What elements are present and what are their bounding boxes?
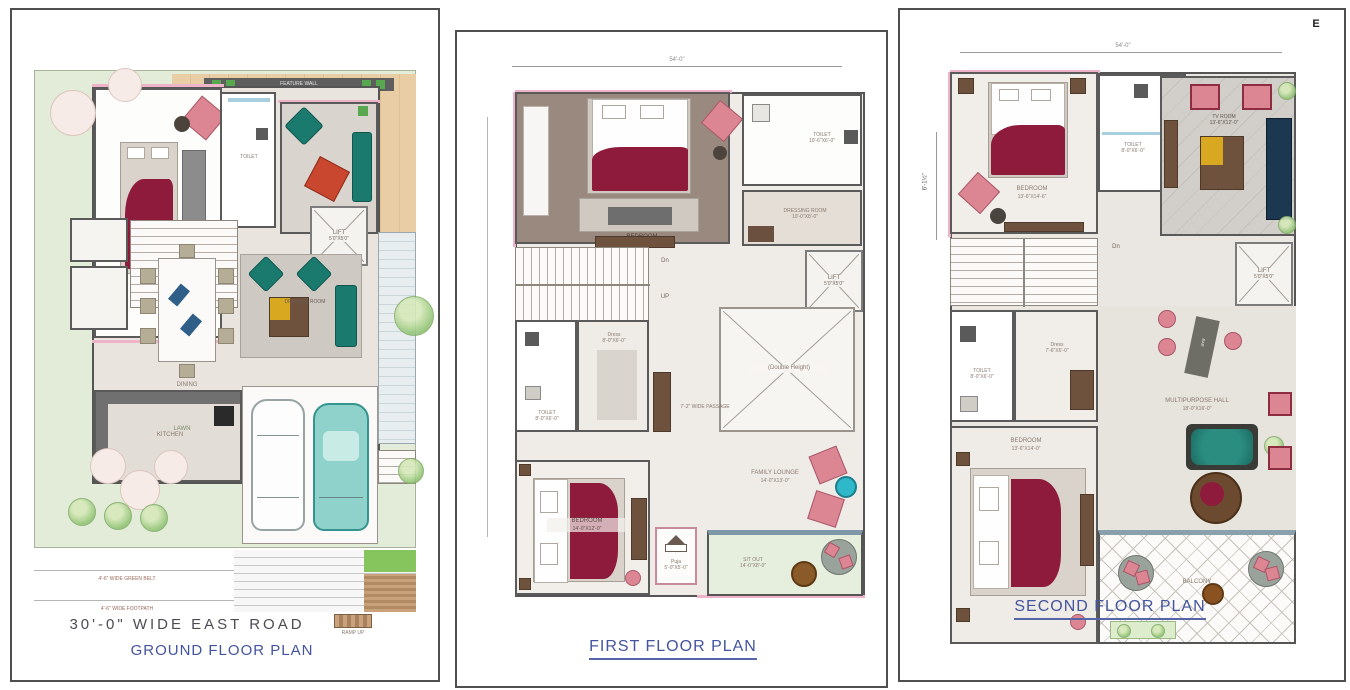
stairs-down-label: Dn — [1104, 244, 1128, 252]
wardrobe — [523, 106, 549, 216]
greenbelt-label: 4'-6" WIDE GREEN BELT — [52, 576, 202, 582]
stairs-down-label: Dn — [653, 258, 677, 266]
lift-label: LIFT5'0"X5'0" — [329, 230, 349, 243]
round-sofa-icon — [1190, 472, 1242, 524]
sofa-icon — [335, 285, 357, 347]
passage-label: 7'-2" WIDE PASSAGE — [655, 404, 755, 410]
bed — [587, 98, 691, 194]
bedroom: BEDROOM13'-6"X14'-6" — [950, 72, 1098, 234]
dimension-line — [960, 52, 1282, 53]
toilet-label: TOILET8'-0"X6'-0" — [523, 410, 571, 423]
lift-label: LIFT5'0"X5'0" — [1254, 268, 1274, 281]
chair-icon — [218, 298, 234, 314]
dimension-line — [936, 132, 937, 240]
ramp-icon — [334, 614, 372, 628]
plan-title: GROUND FLOOR PLAN — [82, 642, 362, 659]
multipurpose-hall: BAR MULTIPURPOSE HALL18'-0"X16'-0" — [1098, 306, 1296, 530]
dimension-label: 6'-1½" — [922, 162, 930, 202]
chair-icon — [140, 268, 156, 284]
balcony-label: BALCONY — [1162, 579, 1232, 587]
toilet-label: TOILET — [226, 154, 272, 160]
cabinet — [748, 226, 774, 242]
tree-icon — [154, 450, 188, 484]
footpath-line — [34, 600, 234, 601]
second-floor-panel: E 54'-0" 6'-1½" BEDROOM13'-6"X14'-6" TOI… — [898, 8, 1346, 682]
kitchen-counter — [96, 392, 240, 404]
dimension-line — [512, 66, 842, 67]
wc-icon — [525, 386, 541, 400]
corner-post — [519, 464, 531, 476]
puja-room: Puja5'-0"X5'-0" — [655, 527, 697, 585]
footpath-label: 4'-6" WIDE FOOTPATH — [52, 606, 202, 612]
tree-icon — [50, 90, 96, 136]
tree-icon — [140, 504, 168, 532]
balcony: BALCONY — [1098, 530, 1296, 644]
tv-room-label: TV ROOM13'-6"X12'-0" — [1194, 114, 1254, 127]
utility-room — [70, 266, 128, 330]
table-decor-icon — [180, 313, 202, 336]
tree-icon — [90, 448, 126, 484]
family-lounge-label: FAMILY LOUNGE14'-0"X13'-0" — [725, 470, 825, 484]
road-label: 30'-0" WIDE EAST ROAD — [42, 616, 332, 633]
dining-label: DINING — [158, 382, 216, 390]
dimension-label: 54'-0" — [652, 57, 702, 65]
ground-toilet: TOILET — [220, 92, 276, 228]
dress-room: Dress7'-6"X6'-0" — [1014, 310, 1098, 422]
toilet-2: TOILET8'-0"X6'-0" — [950, 310, 1014, 422]
shrine-icon — [667, 535, 685, 544]
staircase — [950, 238, 1098, 306]
corner-post — [956, 452, 970, 466]
lift-shaft: LIFT5'0"X5'0" — [805, 250, 863, 312]
cabinet — [1070, 370, 1094, 410]
greenbelt-line — [34, 570, 234, 571]
kitchen-counter — [96, 392, 108, 452]
floor-plan-sheet: { "colors": { "title_blue": "#44549e", "… — [0, 0, 1350, 690]
plant-icon — [1278, 82, 1296, 100]
sofa-icon — [352, 132, 372, 202]
lift-label: LIFT5'0"X5'0" — [824, 275, 844, 288]
bedroom-label: BEDROOM13'-6"X14'-6" — [992, 186, 1072, 200]
toilet-label: TOILET8'-0"X6'-0" — [1106, 142, 1160, 155]
washbasin-icon — [256, 128, 268, 140]
tree-icon — [104, 502, 132, 530]
accent-chair-icon — [304, 156, 350, 202]
plant-icon — [1278, 216, 1296, 234]
first-floor-panel: 54'-0" BEDROOM15'-0"X14'-0" TOILET10'-6"… — [455, 30, 888, 688]
chair-icon — [218, 328, 234, 344]
master-bedroom: BEDROOM15'-0"X14'-0" — [515, 92, 730, 244]
dress-label: Dress8'-0"X6'-0" — [589, 332, 639, 345]
armchair-icon — [248, 256, 285, 293]
round-table-icon — [791, 561, 817, 587]
dimension-label: 54'-0" — [1098, 43, 1148, 51]
bar-label: BAR — [1199, 336, 1206, 349]
bar-stool-icon — [1224, 332, 1242, 350]
rug — [579, 198, 699, 232]
plan-title: FIRST FLOOR PLAN — [523, 638, 823, 656]
parking — [242, 386, 378, 544]
plan-title: SECOND FLOOR PLAN — [960, 598, 1260, 616]
washbasin-icon — [1134, 84, 1148, 98]
lawn-label: LAWN — [152, 426, 212, 434]
corner-post — [958, 78, 974, 94]
sit-out: SIT OUT14'-0"X8'-0" — [707, 530, 863, 596]
bedroom-2: BEDROOM14'-0"X12'-0" — [515, 460, 650, 595]
boundary-line — [487, 117, 488, 537]
round-table-icon — [835, 476, 857, 498]
plant-icon — [358, 106, 368, 116]
tv-cabinet — [1164, 120, 1178, 188]
dress-label: Dress7'-6"X6'-0" — [1032, 342, 1082, 355]
store-room — [70, 218, 128, 262]
shower-icon — [752, 104, 770, 122]
puja-label: Puja5'-0"X5'-0" — [659, 559, 693, 572]
bed — [970, 468, 1086, 596]
chair-icon — [218, 268, 234, 284]
armchair-icon — [1268, 392, 1292, 416]
pouf-icon — [625, 570, 641, 586]
soil-patch — [364, 574, 416, 612]
lift-shaft: LIFT5'0"X5'0" — [1235, 242, 1293, 306]
dressing-room-label: DRESSING ROOM10'-0"X8'-0" — [770, 208, 840, 221]
dress-floor — [597, 350, 637, 420]
armchair-icon — [284, 106, 324, 146]
armchair-icon — [1190, 84, 1220, 110]
table-decor-icon — [168, 283, 190, 306]
tree-icon — [108, 68, 142, 102]
dining-table — [158, 258, 216, 362]
double-height-void: (Double Height) — [719, 307, 855, 432]
armchair-icon — [1242, 84, 1272, 110]
corner-post — [519, 578, 531, 590]
bench — [1004, 222, 1084, 232]
bar-stool-icon — [1158, 310, 1176, 328]
chair-icon — [179, 364, 195, 378]
toilet-label: TOILET10'-6"X6'-0" — [792, 132, 852, 145]
stool-icon — [174, 116, 190, 132]
staircase — [515, 247, 649, 321]
multipurpose-hall-label: MULTIPURPOSE HALL18'-0"X16'-0" — [1142, 398, 1252, 412]
guest-bedroom-label: BEDROOM13'-6"X14'-0" — [986, 438, 1066, 452]
tree-icon — [398, 458, 424, 484]
planter-box — [1110, 621, 1176, 639]
sit-out-label: SIT OUT14'-0"X8'-0" — [723, 557, 783, 570]
bed — [988, 82, 1068, 178]
car-icon — [313, 403, 369, 531]
bar-stool-icon — [1158, 338, 1176, 356]
window — [228, 98, 270, 102]
grass-patch — [364, 550, 416, 572]
drawing-room: DRAWING ROOM — [240, 254, 362, 358]
ground-floor-panel: FEATURE WALL DECK BEDROOM TOILET LI — [10, 8, 440, 682]
car-icon — [251, 399, 305, 531]
patio-chair-icon — [821, 539, 857, 575]
tree-icon — [394, 296, 434, 336]
chair-icon — [140, 298, 156, 314]
toilet-2: TOILET8'-0"X6'-0" — [515, 320, 577, 432]
ramp-label: RAMP UP — [328, 630, 378, 636]
side-passage — [378, 232, 416, 444]
chair-icon — [179, 244, 195, 258]
wc-icon — [960, 396, 978, 412]
dress-room: Dress8'-0"X6'-0" — [577, 320, 649, 432]
patio-chair-icon — [1248, 551, 1284, 587]
cabinet — [653, 372, 671, 432]
drawing-room-label: DRAWING ROOM — [275, 299, 335, 305]
cabinet — [1080, 494, 1094, 566]
armchair-icon — [1268, 446, 1292, 470]
patio-chair-icon — [1118, 555, 1154, 591]
compass-east-label: E — [1304, 18, 1328, 32]
armchair-icon — [296, 256, 333, 293]
toilet-label: TOILET8'-0"X6'-0" — [960, 368, 1004, 381]
chair-icon — [140, 328, 156, 344]
sofa-icon — [1266, 118, 1292, 220]
tree-icon — [68, 498, 96, 526]
toilet: TOILET10'-6"X6'-0" — [742, 94, 862, 186]
stool-icon — [713, 146, 727, 160]
bedroom-label: BEDROOM14'-0"X12'-0" — [547, 518, 627, 532]
dressing-room: DRESSING ROOM10'-0"X8'-0" — [742, 190, 862, 246]
coffee-table — [1200, 136, 1244, 190]
tv-room: TV ROOM13'-6"X12'-0" — [1160, 76, 1296, 236]
corner-post — [1070, 78, 1086, 94]
stairs-up-label: UP — [653, 294, 677, 302]
stove-icon — [214, 406, 234, 426]
cabinet — [631, 498, 647, 560]
double-height-label: (Double Height) — [749, 365, 829, 373]
washbasin-icon — [960, 326, 976, 342]
shrine-base — [665, 544, 687, 552]
spa-table — [1186, 424, 1258, 470]
bar-counter: BAR — [1184, 316, 1220, 378]
washbasin-icon — [525, 332, 539, 346]
